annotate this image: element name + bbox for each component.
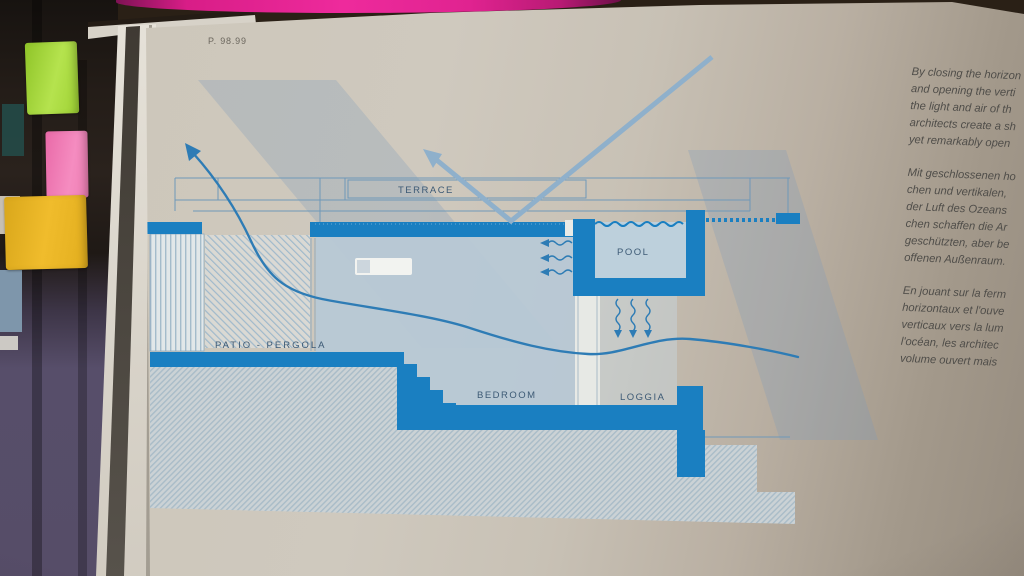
architecture-section-diagram: TERRACE POOL PATIO - PERGOLA BEDROOM LOG… [0,0,1024,576]
caption-english: By closing the horizon and opening the v… [909,64,1024,158]
roof-slab [310,222,597,237]
book-spine [0,270,22,332]
pergola-beam [147,222,202,234]
yellow-sticky-tab [4,195,88,270]
green-sticky-tab [25,41,79,115]
book-spine [0,336,18,350]
caption-text-column: By closing the horizon and opening the v… [899,64,1024,393]
bedroom-floor-slab [450,405,703,430]
label-loggia: LOGGIA [620,392,665,403]
loggia-space [600,296,677,405]
caption-german: Mit geschlossenen ho chen und vertikalen… [904,165,1024,276]
label-patio-pergola: PATIO - PERGOLA [215,340,326,351]
page-reference: P. 98.99 [208,36,247,46]
pool-floor [573,278,705,296]
book-photo: TERRACE POOL PATIO - PERGOLA BEDROOM LOG… [0,0,1024,576]
loggia-parapet [677,386,703,405]
pink-sticky-tab [45,131,88,199]
book-spine [2,104,24,156]
label-bedroom: BEDROOM [477,390,537,401]
wall-gap [575,296,600,405]
patio-louver-wall [150,234,204,351]
foundation-column [677,430,705,477]
room-left-wall-lines [311,238,315,351]
deck-end-cap [776,213,800,224]
sun-reflection-arrow [423,57,712,221]
label-pool: POOL [617,247,649,258]
book-page: TERRACE POOL PATIO - PERGOLA BEDROOM LOG… [0,0,1024,576]
label-terrace: TERRACE [398,185,454,196]
caption-french: En jouant sur la ferm horizontaux et l'o… [900,283,1024,377]
bed-pillow [357,260,370,273]
